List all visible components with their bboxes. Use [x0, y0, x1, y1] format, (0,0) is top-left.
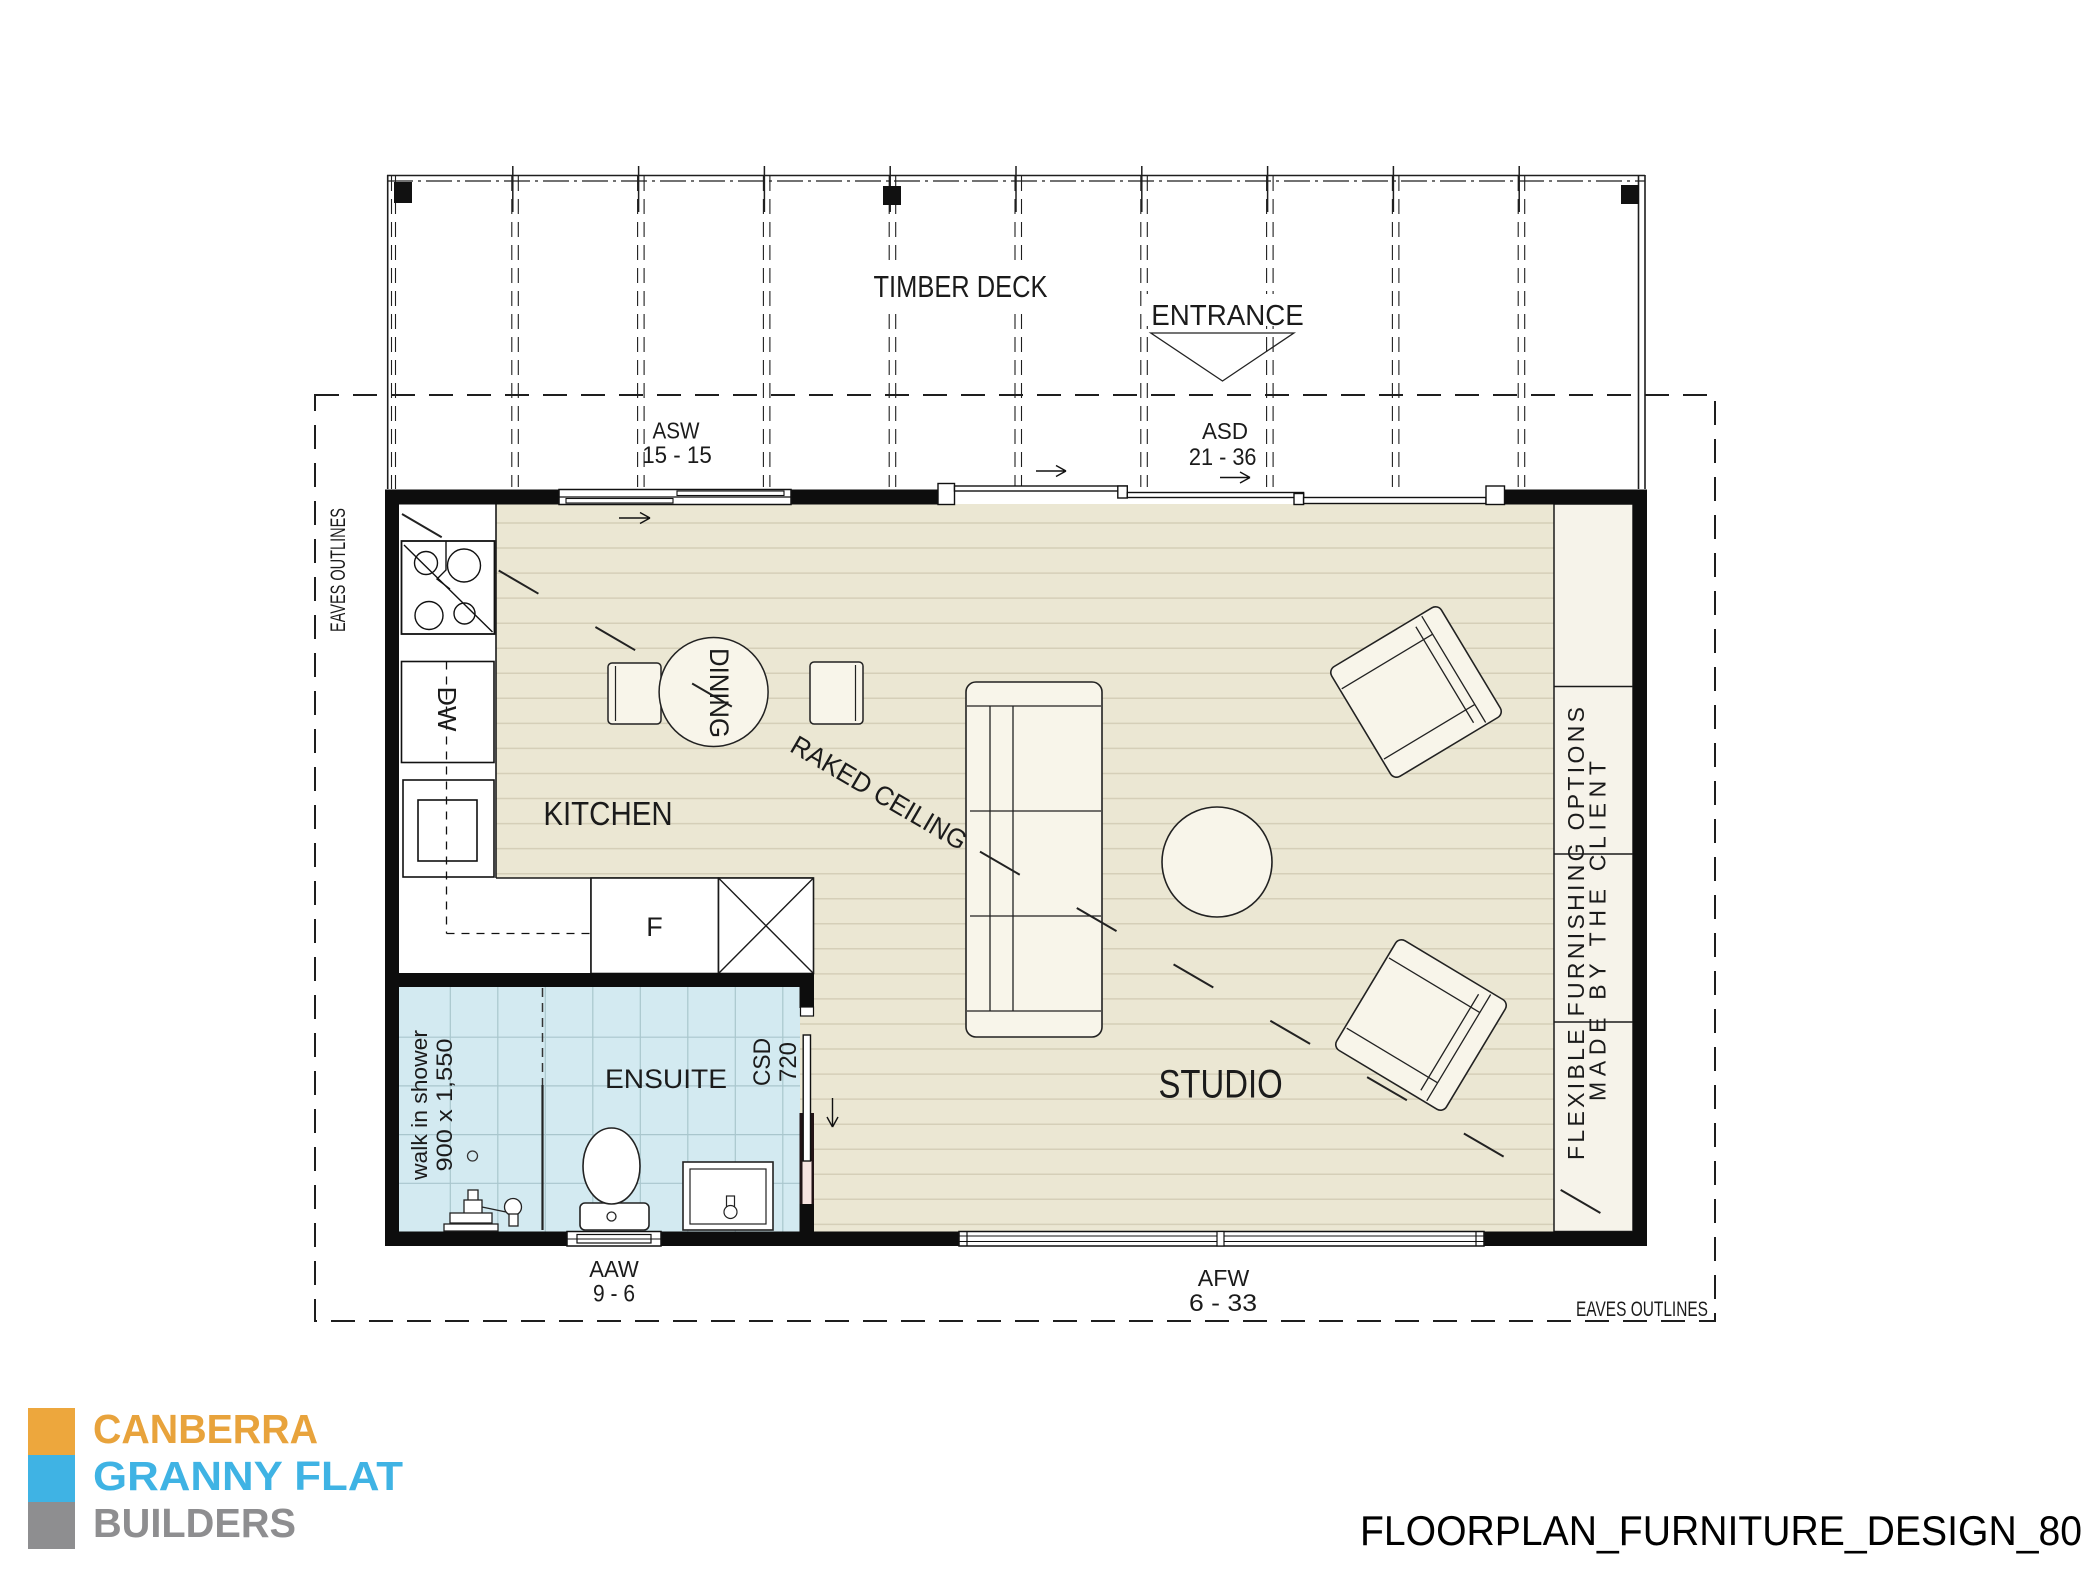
- svg-text:CSD: CSD: [749, 1038, 776, 1086]
- svg-text:GRANNY FLAT: GRANNY FLAT: [93, 1453, 403, 1499]
- svg-text:15 - 15: 15 - 15: [642, 442, 712, 469]
- svg-text:DINING: DINING: [704, 648, 734, 738]
- svg-text:walk in shower: walk in shower: [407, 1030, 432, 1181]
- svg-text:TIMBER DECK: TIMBER DECK: [874, 269, 1048, 304]
- svg-text:6 - 33: 6 - 33: [1189, 1290, 1257, 1317]
- svg-text:ENSUITE: ENSUITE: [605, 1064, 727, 1094]
- svg-text:EAVES OUTLINES: EAVES OUTLINES: [327, 508, 350, 632]
- svg-text:AAW: AAW: [589, 1256, 639, 1282]
- svg-text:EAVES OUTLINES: EAVES OUTLINES: [1576, 1298, 1708, 1321]
- svg-text:AFW: AFW: [1198, 1265, 1250, 1291]
- svg-text:BUILDERS: BUILDERS: [93, 1500, 296, 1546]
- svg-text:F: F: [646, 912, 663, 942]
- svg-text:DW: DW: [432, 687, 462, 732]
- svg-text:KITCHEN: KITCHEN: [543, 795, 672, 832]
- svg-text:720: 720: [775, 1042, 802, 1082]
- svg-text:21 - 36: 21 - 36: [1189, 444, 1257, 471]
- svg-text:STUDIO: STUDIO: [1159, 1063, 1283, 1107]
- svg-text:FLOORPLAN_FURNITURE_DESIGN_80: FLOORPLAN_FURNITURE_DESIGN_80: [1360, 1507, 2082, 1554]
- svg-text:900 x 1,550: 900 x 1,550: [432, 1039, 457, 1172]
- svg-text:CANBERRA: CANBERRA: [93, 1406, 318, 1452]
- svg-text:ASW: ASW: [653, 418, 700, 444]
- svg-text:ENTRANCE: ENTRANCE: [1151, 300, 1304, 332]
- svg-text:9 - 6: 9 - 6: [593, 1281, 635, 1308]
- svg-text:ASD: ASD: [1202, 418, 1248, 444]
